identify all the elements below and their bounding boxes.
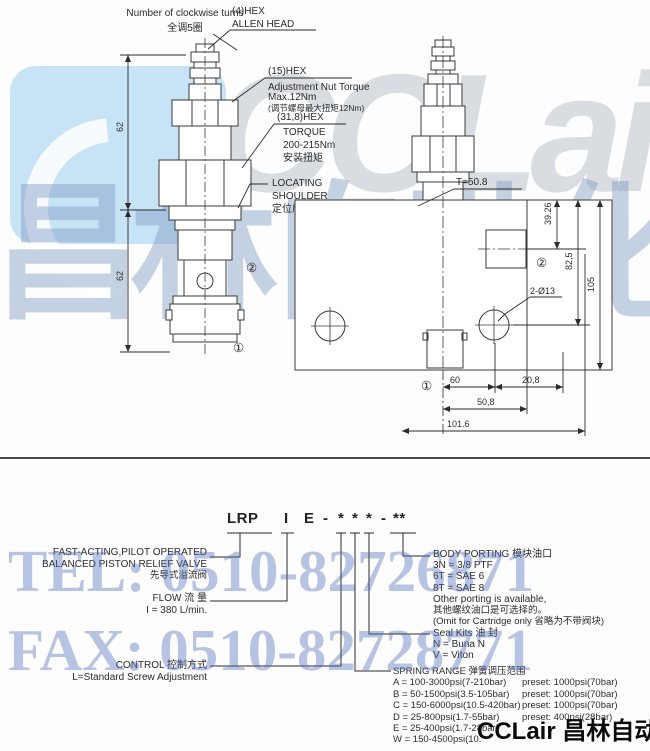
spring-preset-value: preset: 1000psi(70bar) <box>522 689 618 700</box>
model-code-star-1: * <box>338 510 344 527</box>
fax-watermark: FAX: 0510-82728771 <box>8 620 533 680</box>
tel-watermark: TEL: 0510-82726871 <box>8 541 534 601</box>
model-code-dash-2: - <box>381 510 387 527</box>
spring-range-row: B = 50-1500psi(3.5-105bar)preset: 1000ps… <box>393 689 618 700</box>
model-code-star-3: * <box>366 510 372 527</box>
flow-value: I = 380 L/min. <box>0 605 207 617</box>
spring-range-value: B = 50-1500psi(3.5-105bar) <box>393 689 522 700</box>
model-code-suffix: ** <box>393 510 406 527</box>
spring-range-value: C = 150-6000psi(10.5-420bar) <box>393 700 522 711</box>
body-porting-option: 其他螺纹油口是可选择的。 <box>433 605 604 616</box>
model-code-star-2: * <box>352 510 358 527</box>
model-code-prefix: LRP <box>227 510 259 527</box>
spring-preset-value: preset: 1000psi(70bar) <box>522 700 618 711</box>
spring-range-row: C = 150-6000psi(10.5-420bar)preset: 1000… <box>393 700 618 711</box>
footer-brand-watermark: CCLair 昌林自动化 <box>477 711 650 746</box>
model-code-dash-1: - <box>323 510 329 527</box>
spring-preset-value: preset: 1000psi(70bar) <box>522 677 618 688</box>
model-code-control: E <box>304 510 315 527</box>
model-code-flow: I <box>284 510 289 527</box>
